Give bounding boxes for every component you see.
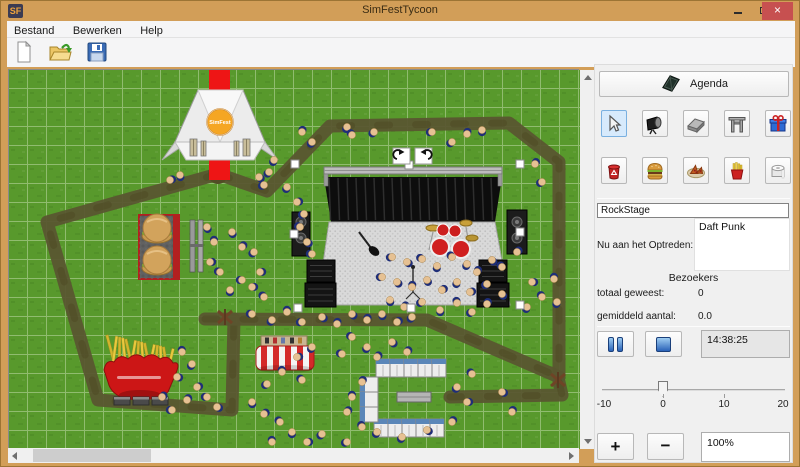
app-window: SF SimFestTycoon × Bestand Bewerken Help [0,0,800,467]
new-document-icon [12,40,36,64]
fries-icon [726,160,748,182]
zoom-out-button[interactable]: − [647,433,684,460]
tent-logo: SimFest [209,120,231,126]
scroll-up-icon[interactable] [584,75,592,80]
burger-stand[interactable] [139,214,203,279]
agenda-book-icon [660,73,682,95]
tool-entrance-gate[interactable] [724,110,750,137]
agenda-label: Agenda [690,78,728,90]
divider [597,198,790,199]
menu-help[interactable]: Help [133,23,170,39]
hamburger-icon [644,160,666,182]
menubar: Bestand Bewerken Help [7,21,795,38]
rotate-ccw-button[interactable] [393,148,410,164]
selection-handle[interactable] [290,230,298,238]
selection-handle[interactable] [407,304,415,312]
menu-bestand[interactable]: Bestand [7,23,61,39]
total-visitors-value: 0 [698,288,704,299]
toolbar [7,38,795,67]
rotate-cw-button[interactable] [415,148,432,164]
selection-handle[interactable] [516,301,524,309]
gate-icon [726,113,748,135]
slider-tick-10: 10 [718,399,729,410]
stop-button[interactable] [645,331,682,357]
avg-visitors-label: gemiddeld aantal: [597,311,676,322]
visitors-header: Bezoekers [595,272,792,284]
path-tile-icon [685,113,707,135]
tool-stage-light[interactable] [642,110,668,137]
scroll-down-icon[interactable] [584,439,592,444]
selection-handle[interactable] [291,160,299,168]
selection-handle[interactable] [294,304,302,312]
toilet-roll-icon [767,160,789,182]
now-playing-box: Daft Punk [694,218,790,271]
tool-toilet-roll[interactable] [765,157,791,184]
agenda-button[interactable]: Agenda [599,71,789,97]
titlebar: SF SimFestTycoon × [1,1,799,21]
striped-stand[interactable] [256,336,314,373]
pizza-icon [685,160,707,182]
divider [597,326,790,327]
slider-tick--10: -10 [597,399,611,410]
map-vertical-scrollbar[interactable] [580,70,594,449]
spotlight-icon [644,113,666,135]
open-file-icon [48,40,72,64]
selection-handle[interactable] [516,228,524,236]
slider-tick-20: 20 [777,399,788,410]
scroll-left-icon[interactable] [12,452,17,460]
cursor-icon [603,113,625,135]
trash-can-icon [603,160,625,182]
new-document-button[interactable] [12,40,36,64]
pause-icon [608,337,614,352]
stage-name-input[interactable] [597,203,789,218]
stop-icon [656,337,671,352]
tool-fries[interactable] [724,157,750,184]
pause-button[interactable] [597,331,634,357]
selection-handle[interactable] [516,160,524,168]
save-icon [85,40,109,64]
tool-trash-can[interactable] [601,157,627,184]
zoom-in-button[interactable]: + [597,433,634,460]
speed-slider-track[interactable] [602,389,785,391]
tool-hamburger[interactable] [642,157,668,184]
avg-visitors-value: 0.0 [698,311,712,322]
clock-display: 14:38:25 [701,330,790,358]
festival-map[interactable]: SimFest [8,69,579,448]
slider-tick-0: 0 [660,399,666,410]
window-title: SimFestTycoon [1,4,799,16]
minimize-button[interactable] [725,1,751,20]
tool-select-cursor[interactable] [601,110,627,137]
menu-bewerken[interactable]: Bewerken [66,23,129,39]
tool-gift[interactable] [765,110,791,137]
close-button[interactable]: × [762,2,793,20]
scroll-right-icon[interactable] [569,452,574,460]
control-panel: Agenda [594,64,793,463]
horizontal-scroll-thumb[interactable] [33,449,151,462]
zoom-level-display: 100% [701,432,790,462]
map-horizontal-scrollbar[interactable] [8,448,579,463]
total-visitors-label: totaal geweest: [597,288,664,299]
gift-icon [767,113,789,135]
now-playing-label: Nu aan het Optreden: [597,240,693,251]
now-playing-value: Daft Punk [699,221,745,233]
save-button[interactable] [85,40,109,64]
tool-pizza[interactable] [683,157,709,184]
tool-path-tile[interactable] [683,110,709,137]
open-file-button[interactable] [48,40,72,64]
